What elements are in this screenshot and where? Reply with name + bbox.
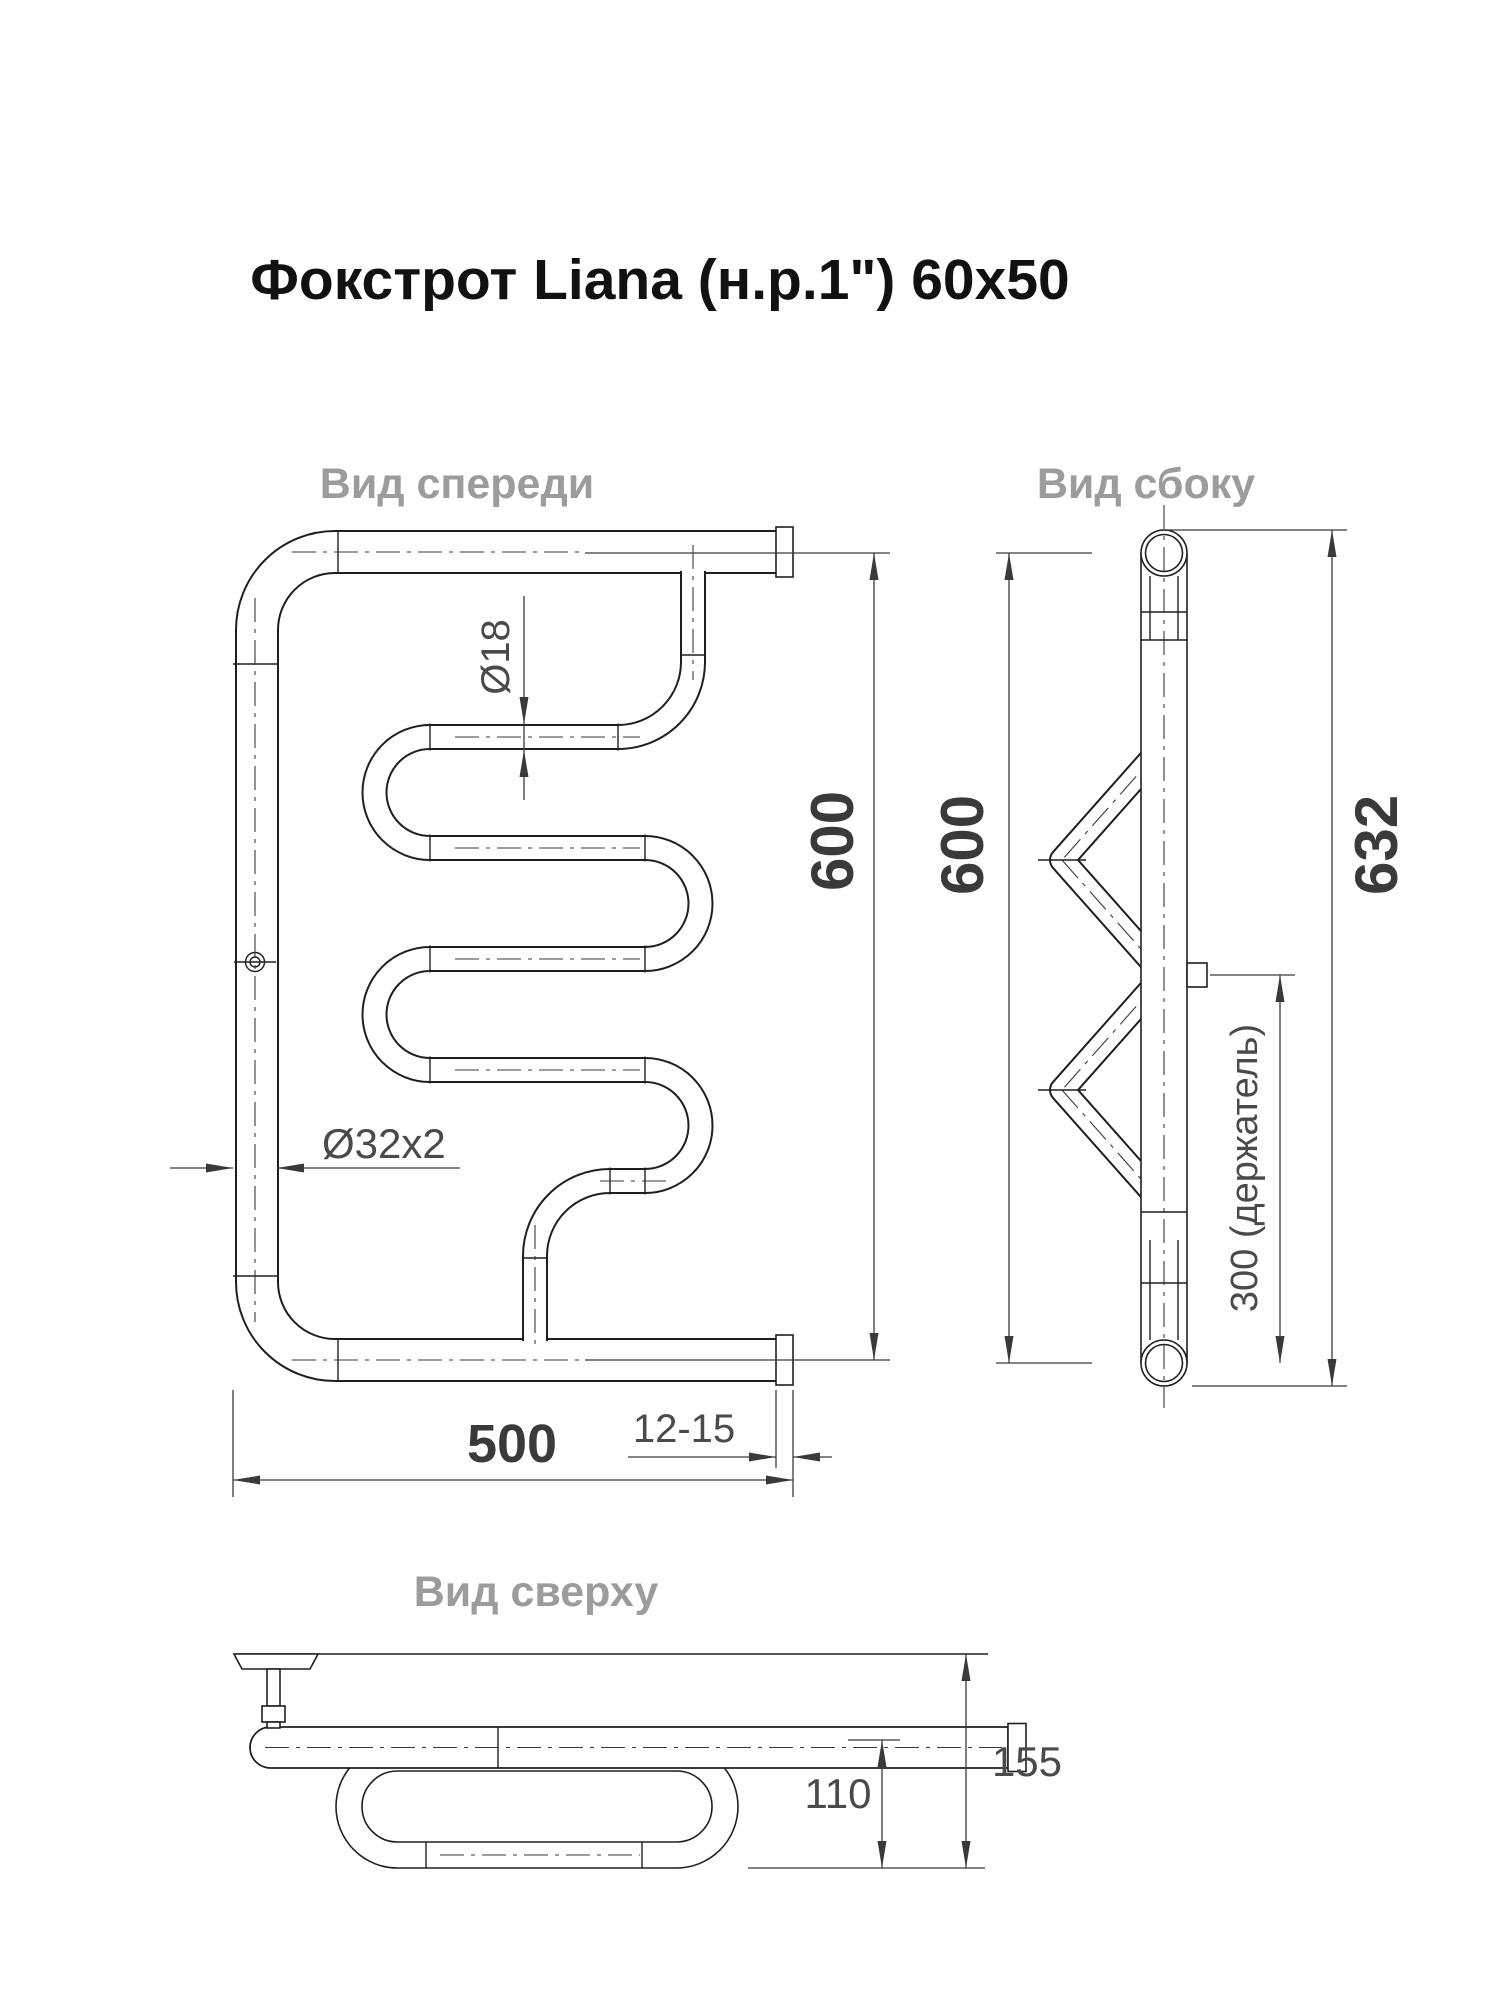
front-dim-height-text: 600 [799, 791, 866, 891]
front-view-label: Вид спереди [320, 460, 594, 508]
top-loop-ticks [426, 1842, 642, 1868]
technical-drawing: Фокстрот Liana (н.р.1") 60x50 Вид сперед… [0, 0, 1500, 2000]
front-dim-coil-diameter: Ø18 [474, 596, 529, 800]
side-holder-bracket [1187, 963, 1207, 987]
front-dim-fitting: 12-15 [628, 1390, 832, 1468]
side-riser-pipe [1141, 505, 1187, 1408]
front-dim-main-diameter-text: Ø32x2 [322, 1120, 446, 1167]
side-dim-height-text: 600 [929, 795, 996, 895]
top-main-pipe [250, 1724, 1026, 1772]
top-view-label: Вид сверху [414, 1568, 659, 1616]
side-dim-holder-text: 300 (держатель) [1224, 1024, 1266, 1312]
front-top-end-cap [776, 527, 793, 577]
side-dim-overall-text: 632 [1343, 795, 1410, 895]
front-dim-width-text: 500 [467, 1414, 557, 1474]
side-view: Вид сбоку [929, 460, 1410, 1408]
front-dim-fitting-text: 12-15 [633, 1407, 735, 1451]
front-dim-coil-diameter-text: Ø18 [474, 619, 518, 695]
drawing-title: Фокстрот Liana (н.р.1") 60x50 [250, 248, 1070, 312]
front-dim-main-diameter: Ø32x2 [170, 1120, 460, 1173]
side-dim-height: 600 [929, 553, 1092, 1363]
side-dim-holder: 300 (держатель) [1210, 975, 1295, 1363]
top-view: Вид сверху [234, 1568, 1062, 1868]
side-dim-overall: 632 [1166, 530, 1410, 1386]
top-holder-bracket [234, 1654, 318, 1728]
front-serpentine-coil [375, 571, 701, 1341]
top-dim-loop-depth-text: 110 [805, 1770, 872, 1817]
top-dim-overall-depth-text: 155 [992, 1738, 1062, 1785]
side-view-label: Вид сбоку [1037, 460, 1255, 508]
drawing-sheet: Фокстрот Liana (н.р.1") 60x50 Вид сперед… [0, 0, 1500, 2000]
front-view: Вид спереди [170, 460, 890, 1497]
